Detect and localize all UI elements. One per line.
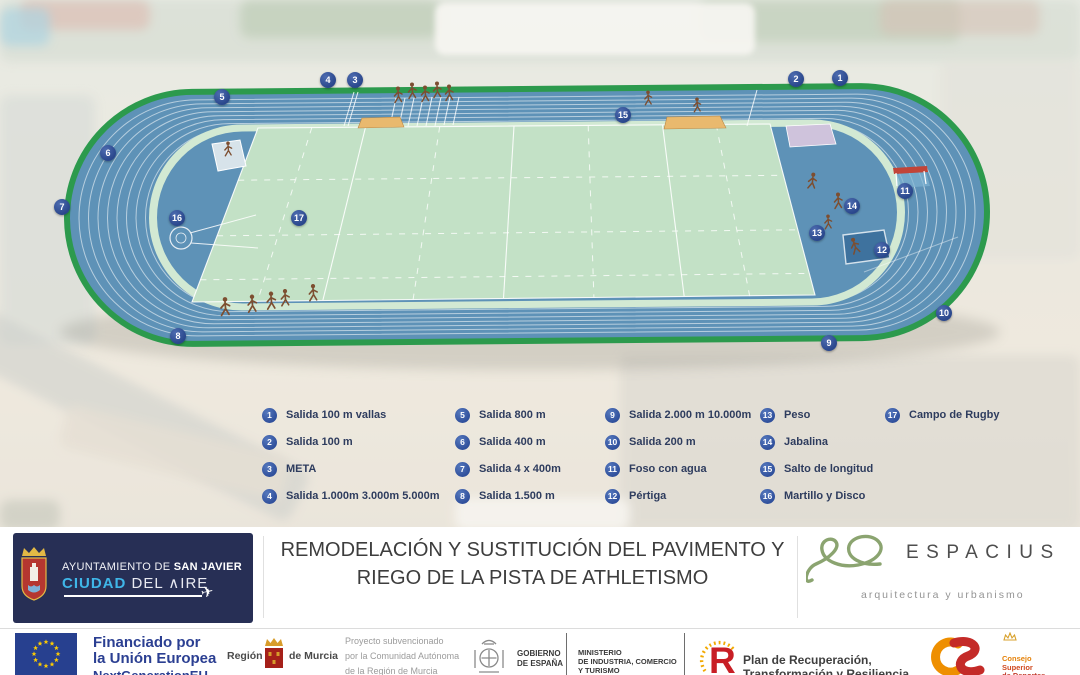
map-marker-13: 13	[809, 225, 825, 241]
legend-item-7: 7Salida 4 x 400m	[455, 461, 561, 477]
legend-column-4: 13Peso 14Jabalina 15Salto de longitud 16…	[760, 407, 873, 515]
map-marker-10: 10	[936, 305, 952, 321]
legend-label-13: Peso	[784, 409, 810, 421]
legend-marker-4: 4	[262, 489, 277, 504]
legend-label-8: Salida 1.500 m	[479, 490, 555, 502]
legend-label-7: Salida 4 x 400m	[479, 463, 561, 475]
san-javier-crest-icon	[17, 545, 57, 609]
spain-coat-of-arms-icon	[470, 635, 508, 675]
rugby-field	[192, 124, 815, 302]
subsidy-line3: de la Región de Murcia	[345, 664, 459, 675]
ministerio-line1: MINISTERIO	[578, 648, 677, 657]
footer-divider-2	[797, 536, 798, 618]
legend-marker-9: 9	[605, 408, 620, 423]
legend-column-5: 17Campo de Rugby	[885, 407, 999, 434]
legend-marker-12: 12	[605, 489, 620, 504]
legend-column-3: 9Salida 2.000 m 10.000m 10Salida 200 m 1…	[605, 407, 751, 515]
legend-item-17: 17Campo de Rugby	[885, 407, 999, 423]
funding-divider-2	[684, 633, 685, 675]
legend-item-9: 9Salida 2.000 m 10.000m	[605, 407, 751, 423]
csd-label: Consejo Superior de Deportes	[1002, 655, 1045, 675]
map-marker-11: 11	[897, 183, 913, 199]
legend-item-1: 1Salida 100 m vallas	[262, 407, 440, 423]
legend-item-12: 12Pértiga	[605, 488, 751, 504]
ministerio-line2: DE INDUSTRIA, COMERCIO	[578, 657, 677, 666]
map-marker-7: 7	[54, 199, 70, 215]
map-marker-17: 17	[291, 210, 307, 226]
legend-marker-3: 3	[262, 462, 277, 477]
ciudad-del-aire: CIUDAD DEL ∧IRE	[62, 574, 208, 592]
legend-marker-15: 15	[760, 462, 775, 477]
legend-marker-5: 5	[455, 408, 470, 423]
project-title: REMODELACIÓN Y SUSTITUCIÓN DEL PAVIMENTO…	[270, 536, 795, 592]
ministerio-line3: Y TURISMO	[578, 666, 677, 675]
legend-marker-10: 10	[605, 435, 620, 450]
csd-crown-icon	[1003, 632, 1017, 641]
map-marker-1: 1	[832, 70, 848, 86]
map-marker-4: 4	[320, 72, 336, 88]
subsidy-line2: por la Comunidad Autónoma	[345, 649, 459, 664]
legend-label-12: Pértiga	[629, 490, 666, 502]
svg-text:R: R	[709, 640, 736, 675]
legend-item-16: 16Martillo y Disco	[760, 488, 873, 504]
nextgeneration-eu: NextGenerationEU	[93, 668, 208, 675]
legend-column-2: 5Salida 800 m 6Salida 400 m 7Salida 4 x …	[455, 407, 561, 515]
san-javier-name: AYUNTAMIENTO DE SAN JAVIER	[62, 561, 242, 573]
de-murcia-label: de Murcia	[289, 650, 338, 662]
legend-label-3: META	[286, 463, 316, 475]
funding-band: Financiado por la Unión Europea NextGene…	[0, 628, 1080, 675]
legend-marker-7: 7	[455, 462, 470, 477]
prtr-logo-icon: R	[696, 635, 744, 675]
legend-marker-14: 14	[760, 435, 775, 450]
map-marker-6: 6	[100, 145, 116, 161]
legend-label-15: Salto de longitud	[784, 463, 873, 475]
map-marker-8: 8	[170, 328, 186, 344]
map-marker-5: 5	[214, 89, 230, 105]
subsidy-line1: Proyecto subvencionado	[345, 634, 459, 649]
espacius-name: ESPACIUS	[906, 542, 1061, 564]
legend-marker-16: 16	[760, 489, 775, 504]
footer-divider-1	[263, 536, 264, 618]
legend-marker-8: 8	[455, 489, 470, 504]
project-title-line2: RIEGO DE LA PISTA DE ATHLETISMO	[270, 564, 795, 592]
map-marker-3: 3	[347, 72, 363, 88]
map-marker-15: 15	[615, 107, 631, 123]
prtr-line1: Plan de Recuperación,	[743, 653, 909, 667]
legend-label-14: Jabalina	[784, 436, 828, 448]
legend-item-14: 14Jabalina	[760, 434, 873, 450]
csd-logo-icon	[912, 637, 992, 675]
ministerio-label: MINISTERIO DE INDUSTRIA, COMERCIO Y TURI…	[578, 648, 677, 675]
contrail-line	[64, 595, 202, 597]
legend-label-9: Salida 2.000 m 10.000m	[629, 409, 751, 421]
legend-marker-11: 11	[605, 462, 620, 477]
jump-mat-pink	[786, 124, 836, 147]
san-javier-pre: AYUNTAMIENTO DE	[62, 561, 174, 573]
espacius-tagline: arquitectura y urbanismo	[861, 589, 1025, 601]
region-label: Región	[227, 650, 263, 662]
airplane-icon: ✈	[199, 582, 215, 602]
prtr-line2: Transformación y Resiliencia	[743, 667, 909, 675]
legend-item-2: 2Salida 100 m	[262, 434, 440, 450]
legend-item-5: 5Salida 800 m	[455, 407, 561, 423]
murcia-crest-icon	[263, 637, 285, 673]
funding-divider-1	[566, 633, 567, 675]
gobierno-line2: DE ESPAÑA	[517, 659, 563, 669]
gobierno-espana-label: GOBIERNO DE ESPAÑA	[517, 649, 563, 668]
legend-item-3: 3META	[262, 461, 440, 477]
prtr-label: Plan de Recuperación, Transformación y R…	[743, 653, 909, 675]
poster: 1 2 3 4 5 6 7 8 9 10 11 12 13 14 15 16 1…	[0, 0, 1080, 675]
legend-label-10: Salida 200 m	[629, 436, 696, 448]
map-marker-14: 14	[844, 198, 860, 214]
eu-flag-icon	[15, 633, 77, 675]
gobierno-line1: GOBIERNO	[517, 649, 563, 659]
legend-label-17: Campo de Rugby	[909, 409, 999, 421]
eu-funding-line2: la Unión Europea	[93, 651, 216, 667]
subsidy-note: Proyecto subvencionado por la Comunidad …	[345, 634, 459, 675]
eu-funding-text: Financiado por la Unión Europea	[93, 635, 216, 667]
footer-logo-band: AYUNTAMIENTO DE SAN JAVIER CIUDAD DEL ∧I…	[0, 527, 1080, 628]
san-javier-logo: AYUNTAMIENTO DE SAN JAVIER CIUDAD DEL ∧I…	[13, 533, 253, 623]
del-aire-text: DEL ∧IRE	[126, 575, 208, 592]
legend-label-1: Salida 100 m vallas	[286, 409, 386, 421]
map-marker-16: 16	[169, 210, 185, 226]
legend-marker-1: 1	[262, 408, 277, 423]
legend-label-6: Salida 400 m	[479, 436, 546, 448]
map-marker-9: 9	[821, 335, 837, 351]
legend-item-10: 10Salida 200 m	[605, 434, 751, 450]
legend-label-2: Salida 100 m	[286, 436, 353, 448]
project-title-line1: REMODELACIÓN Y SUSTITUCIÓN DEL PAVIMENTO…	[270, 536, 795, 564]
legend-marker-13: 13	[760, 408, 775, 423]
map-marker-12: 12	[874, 242, 890, 258]
legend-item-15: 15Salto de longitud	[760, 461, 873, 477]
legend-item-6: 6Salida 400 m	[455, 434, 561, 450]
legend-item-13: 13Peso	[760, 407, 873, 423]
legend-marker-2: 2	[262, 435, 277, 450]
legend-item-11: 11Foso con agua	[605, 461, 751, 477]
legend-column-1: 1Salida 100 m vallas 2Salida 100 m 3META…	[262, 407, 440, 515]
legend-item-8: 8Salida 1.500 m	[455, 488, 561, 504]
legend-label-11: Foso con agua	[629, 463, 707, 475]
legend-marker-6: 6	[455, 435, 470, 450]
ciudad-text: CIUDAD	[62, 575, 126, 592]
map-marker-2: 2	[788, 71, 804, 87]
legend-label-5: Salida 800 m	[479, 409, 546, 421]
legend-label-4: Salida 1.000m 3.000m 5.000m	[286, 490, 440, 502]
espacius-swirl-icon	[806, 532, 901, 584]
legend-label-16: Martillo y Disco	[784, 490, 865, 502]
eu-funding-line1: Financiado por	[93, 635, 216, 651]
legend-item-4: 4Salida 1.000m 3.000m 5.000m	[262, 488, 440, 504]
legend-marker-17: 17	[885, 408, 900, 423]
san-javier-bold: SAN JAVIER	[174, 561, 242, 573]
